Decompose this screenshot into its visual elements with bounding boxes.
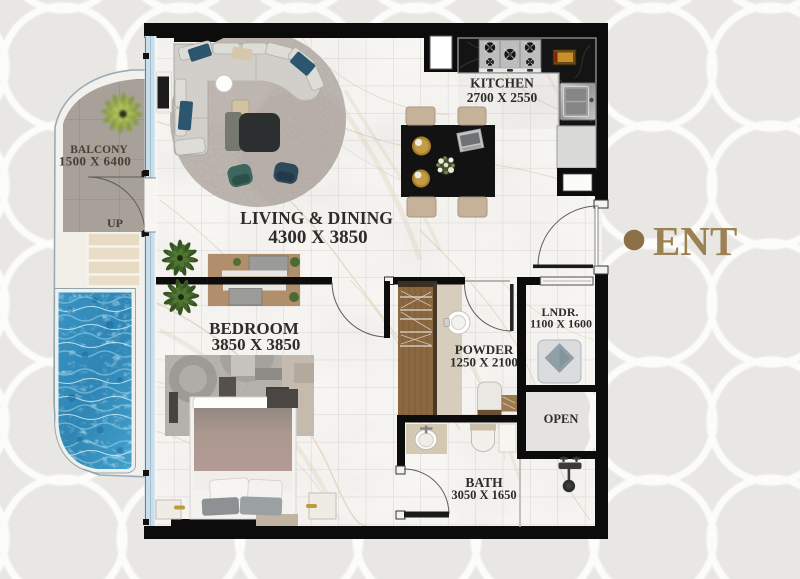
svg-text:1250 X 2100: 1250 X 2100 xyxy=(450,355,518,370)
svg-text:OPEN: OPEN xyxy=(544,412,579,426)
svg-text:UP: UP xyxy=(107,216,123,230)
svg-text:LIVING & DINING: LIVING & DINING xyxy=(240,208,393,228)
svg-text:4300 X 3850: 4300 X 3850 xyxy=(268,227,367,248)
svg-text:1500 X 6400: 1500 X 6400 xyxy=(59,154,131,169)
svg-text:1100 X 1600: 1100 X 1600 xyxy=(530,317,592,331)
svg-text:ENT: ENT xyxy=(653,218,737,264)
svg-text:2700 X 2550: 2700 X 2550 xyxy=(467,90,538,105)
svg-text:3050 X 1650: 3050 X 1650 xyxy=(451,488,516,502)
svg-text:3850 X 3850: 3850 X 3850 xyxy=(212,335,301,354)
svg-text:KITCHEN: KITCHEN xyxy=(470,76,534,91)
